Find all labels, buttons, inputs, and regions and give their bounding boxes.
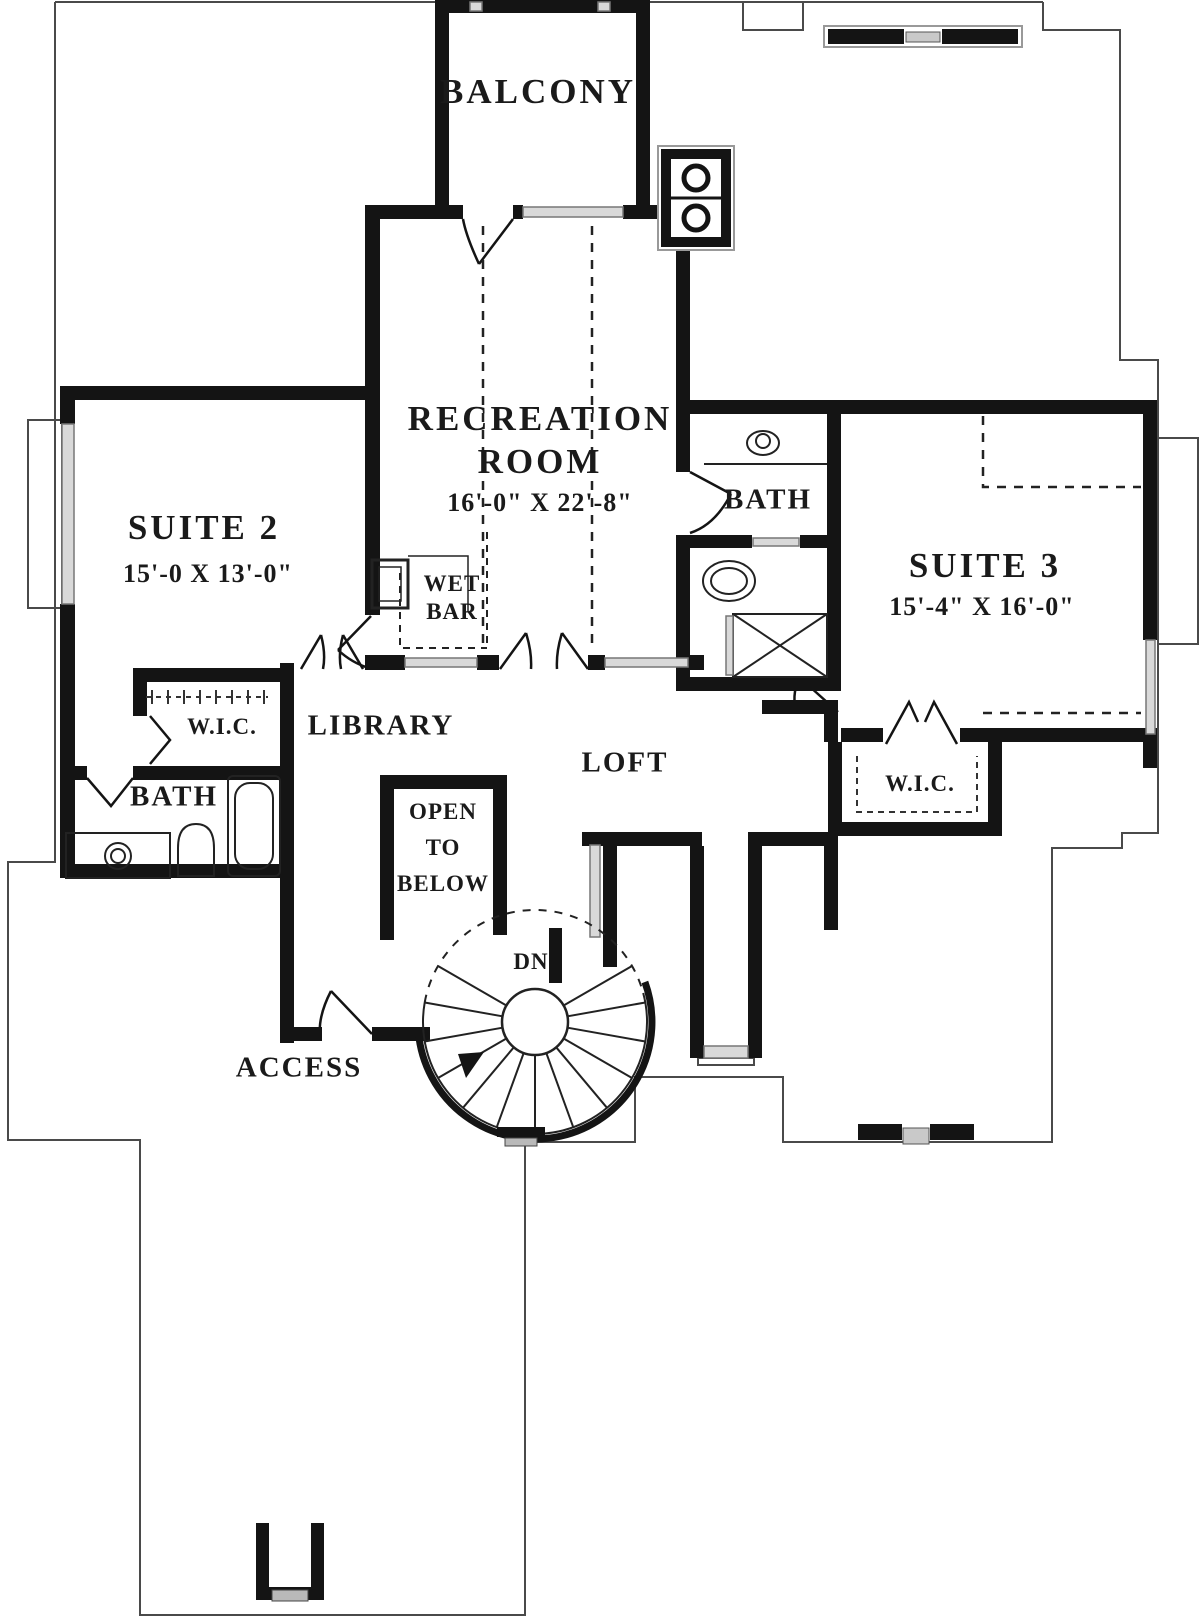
fireplace-chimney — [658, 146, 734, 250]
wic-left-bifold-door — [150, 716, 170, 764]
suite2-window — [62, 424, 74, 604]
stair-center-post — [502, 989, 568, 1055]
floor-plan: BALCONY RECREATION ROOM 16'-0" X 22'-8" … — [0, 0, 1200, 1622]
balcony-door — [463, 219, 513, 264]
room-label-library: LIBRARY — [308, 710, 455, 743]
suite3-window — [1146, 640, 1155, 734]
stair-landing — [497, 1127, 545, 1137]
suite3-bay-frame — [1158, 438, 1198, 644]
room-dims-suite2: 15'-0 X 13'-0" — [123, 559, 293, 589]
room-label-wic-right: W.I.C. — [885, 771, 955, 797]
stair-label-dn: DN — [513, 949, 548, 975]
bath-left-bifold-door — [87, 778, 133, 806]
room-label-bath-right: BATH — [724, 484, 812, 517]
spiral-staircase — [418, 910, 652, 1146]
shower-glass — [726, 616, 733, 675]
room-dims-suite3: 15'-4" X 16'-0" — [889, 592, 1074, 622]
room-label-suite3: SUITE 3 — [909, 546, 1061, 586]
loft-west-window — [590, 845, 600, 937]
room-label-open-2: TO — [426, 835, 461, 861]
recreation-double-doors — [500, 633, 588, 669]
closet-rods — [146, 690, 977, 812]
room-label-wet-bar-1: WET — [424, 571, 481, 597]
room-label-recreation-1: RECREATION — [408, 399, 673, 439]
balcony-rail-post — [598, 2, 610, 11]
bath-pocket-door — [753, 538, 799, 546]
wic-right-double-doors — [886, 702, 957, 744]
roof-chimney — [256, 1523, 324, 1601]
corridor-bay-window — [704, 1046, 748, 1058]
room-label-open-1: OPEN — [409, 799, 477, 825]
room-label-loft: LOFT — [582, 747, 669, 780]
suite2-double-doors — [301, 635, 363, 669]
room-label-open-3: BELOW — [397, 871, 489, 897]
stair-direction-arrow — [458, 1052, 484, 1078]
room-dims-recreation: 16'-0" X 22'-8" — [447, 488, 632, 518]
balcony-door-window — [523, 207, 623, 217]
room-label-suite2: SUITE 2 — [128, 508, 280, 548]
recreation-south-window-2 — [605, 658, 688, 667]
room-label-access: ACCESS — [236, 1052, 362, 1085]
room-label-recreation-2: ROOM — [478, 442, 603, 482]
corridor-bay-sill — [698, 1058, 754, 1065]
room-label-wet-bar-2: BAR — [426, 599, 478, 625]
balcony-rail-post — [470, 2, 482, 11]
room-label-bath-left: BATH — [130, 781, 218, 814]
room-label-balcony: BALCONY — [440, 72, 636, 112]
toilet-right-lid — [756, 434, 770, 448]
access-door — [320, 991, 372, 1036]
recreation-south-window-1 — [405, 658, 477, 667]
suite2-bay-frame — [28, 420, 62, 608]
room-label-wic-left: W.I.C. — [187, 714, 257, 740]
